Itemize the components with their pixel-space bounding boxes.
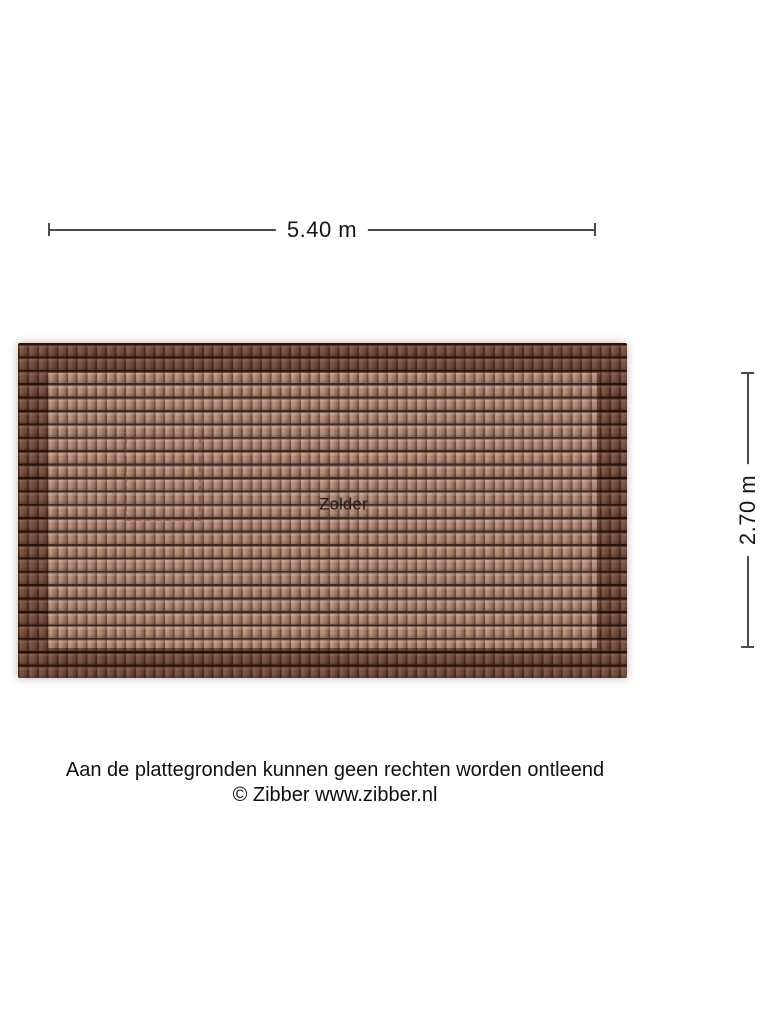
dimension-tick-right — [594, 223, 596, 236]
dimension-tick-bottom — [741, 646, 754, 648]
footer: Aan de plattegronden kunnen geen rechten… — [0, 758, 670, 808]
height-dimension: 2.70 m — [741, 372, 754, 648]
skylight-dashed-outline — [125, 437, 201, 521]
room-label: Zolder — [319, 495, 368, 514]
copyright-text: © Zibber www.zibber.nl — [0, 783, 670, 808]
disclaimer-text: Aan de plattegronden kunnen geen rechten… — [0, 758, 670, 783]
width-dimension: 5.40 m — [48, 223, 596, 236]
height-dimension-label: 2.70 m — [735, 464, 761, 556]
floorplan-page: 5.40 m Zolder 2.70 m Aan de plattegronde… — [0, 0, 768, 1024]
width-dimension-label: 5.40 m — [276, 217, 368, 243]
roof-plan: Zolder — [18, 343, 627, 678]
